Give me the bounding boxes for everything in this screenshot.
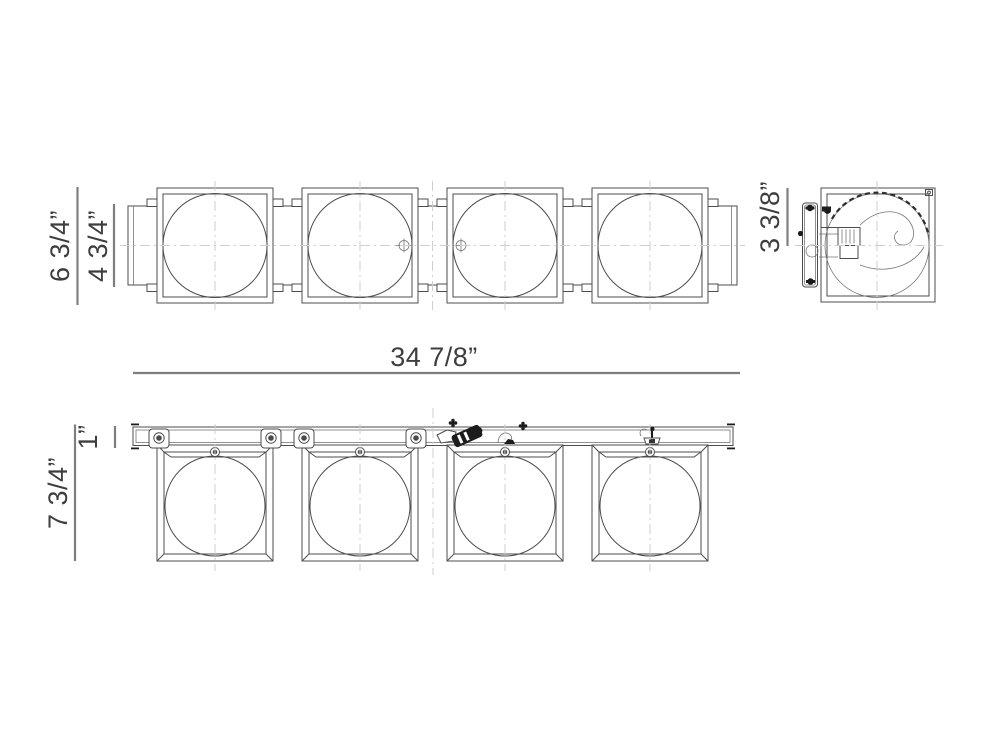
dim-label-rail-height: 1” — [73, 424, 103, 449]
top-view — [120, 181, 745, 310]
globe-cube-bottom-4 — [592, 445, 708, 561]
side-set-screw — [798, 231, 803, 236]
rail-tab-screw-4 — [406, 429, 426, 448]
dim-label-fixture-depth: 6 3/4” — [45, 210, 75, 282]
screw-head-icon — [449, 419, 458, 428]
globe-cube-bottom-3 — [447, 445, 563, 561]
bottom-view — [131, 408, 735, 575]
rail-tab-screw-1 — [149, 429, 169, 448]
dim-label-glass-depth: 4 3/4” — [83, 210, 113, 282]
side-view — [795, 181, 943, 310]
dim-label-overall-width: 34 7/8” — [390, 342, 478, 372]
rail-tab-screw-3 — [294, 429, 314, 448]
dim-label-overall-height: 7 3/4” — [43, 457, 73, 529]
fixture-dimension-drawing: 6 3/4” 4 3/4” 34 7/8” 3 3/8” 1” 7 3/4” — [0, 0, 1000, 750]
globe-cube-bottom-2 — [302, 445, 418, 561]
rail-tab-screw-2 — [261, 429, 281, 448]
drawing-canvas: 6 3/4” 4 3/4” 34 7/8” 3 3/8” 1” 7 3/4” — [0, 0, 1000, 750]
lamp-socket — [838, 228, 860, 246]
globe-cube-bottom-1 — [157, 445, 273, 561]
dim-label-wall-plate-extension: 3 3/8” — [755, 181, 785, 253]
